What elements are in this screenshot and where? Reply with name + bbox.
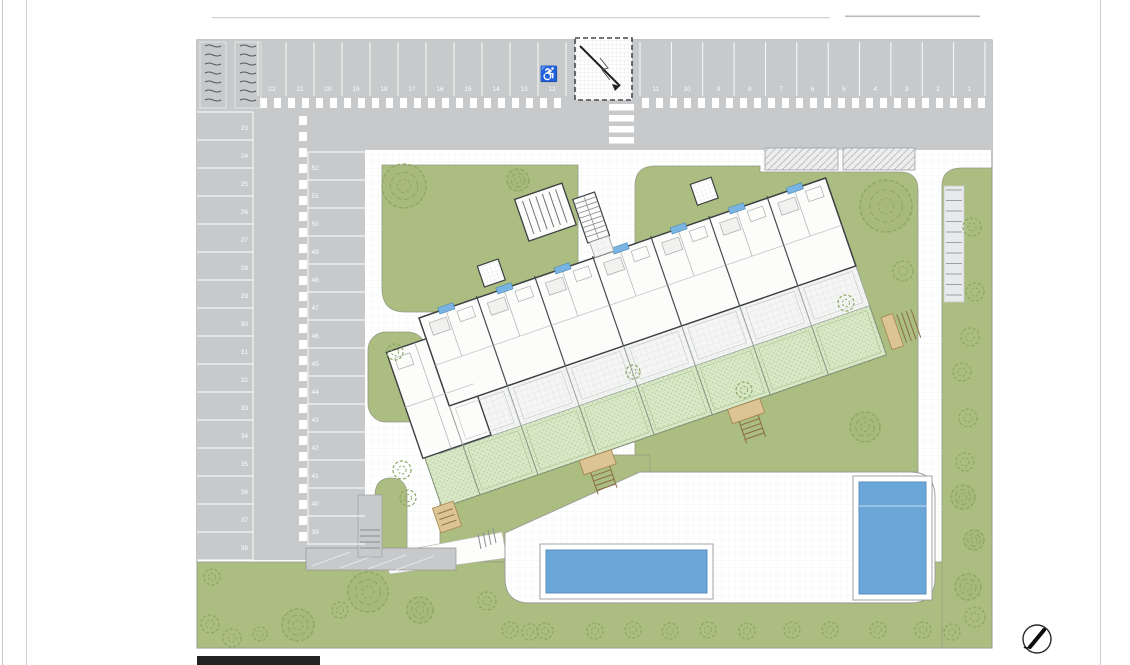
parking-space-number: 24 bbox=[241, 153, 249, 160]
bench-planter-row bbox=[944, 186, 964, 302]
parking-space-number: 42 bbox=[312, 445, 320, 452]
lane-dash bbox=[299, 228, 307, 237]
lane-dash bbox=[299, 292, 307, 301]
parking-space-number: 1 bbox=[967, 86, 971, 93]
parking-space-number: 44 bbox=[312, 389, 320, 396]
tree-canopy-icon bbox=[955, 574, 981, 600]
tree-canopy-icon bbox=[348, 572, 388, 612]
lane-dash bbox=[299, 324, 307, 333]
lane-dash bbox=[299, 388, 307, 397]
parking-space-number: 10 bbox=[683, 86, 691, 93]
parking-space-number: 33 bbox=[241, 405, 249, 412]
north-arrow-compass-icon bbox=[1023, 625, 1051, 653]
parking-space-number: 19 bbox=[352, 86, 360, 93]
parking-stairwell bbox=[575, 38, 632, 100]
tree-canopy-icon bbox=[860, 180, 912, 232]
parking-space-number: 7 bbox=[779, 86, 783, 93]
tree-canopy-icon bbox=[507, 169, 529, 191]
parking-space-number: 28 bbox=[241, 265, 249, 272]
crosswalk-bar bbox=[609, 137, 634, 144]
ramp-north-2 bbox=[843, 148, 915, 170]
parking-space-number: 51 bbox=[312, 193, 320, 200]
parking-space-number: 38 bbox=[241, 545, 249, 552]
parking-space-number: 31 bbox=[241, 349, 249, 356]
lane-dash bbox=[299, 532, 307, 541]
crosswalk-bar bbox=[609, 104, 634, 111]
parking-space-number: 47 bbox=[312, 305, 320, 312]
lane-dash bbox=[299, 404, 307, 413]
parking-space-number: 18 bbox=[380, 86, 388, 93]
main-pool bbox=[540, 544, 713, 599]
parking-space-number: 16 bbox=[436, 86, 444, 93]
lane-dash bbox=[299, 148, 307, 157]
parking-space-number: 15 bbox=[464, 86, 472, 93]
tree-canopy-icon bbox=[850, 412, 880, 442]
parking-space-number: 22 bbox=[268, 86, 276, 93]
parking-space-number: 30 bbox=[241, 321, 249, 328]
lane-dash bbox=[299, 452, 307, 461]
parking-space-number: 2 bbox=[936, 86, 940, 93]
parking-space-number: 49 bbox=[312, 249, 320, 256]
parking-space-number: 35 bbox=[241, 461, 249, 468]
parking-space-number: 23 bbox=[241, 125, 249, 132]
parking-space-number: 9 bbox=[717, 86, 721, 93]
site-plan-canvas: 2221201918171615141312111098765432123242… bbox=[0, 0, 1130, 665]
lane-dash bbox=[299, 164, 307, 173]
parking-space-number: 11 bbox=[652, 86, 659, 93]
parking-space-number: 34 bbox=[241, 433, 249, 440]
parking-space-number: 32 bbox=[241, 377, 249, 384]
parking-space-number: 17 bbox=[408, 86, 416, 93]
parking-space-number: 50 bbox=[312, 221, 320, 228]
lane-dash bbox=[299, 244, 307, 253]
parking-space-number: 43 bbox=[312, 417, 320, 424]
parking-space-number: 25 bbox=[241, 181, 249, 188]
pedestrian-ramp-path bbox=[358, 495, 382, 557]
parking-space-number: 39 bbox=[312, 529, 320, 536]
parking-space-number: 13 bbox=[520, 86, 528, 93]
parking-space-number: 6 bbox=[811, 86, 815, 93]
lane-dash bbox=[299, 196, 307, 205]
tree-canopy-icon bbox=[951, 485, 975, 509]
parking-space-number: 3 bbox=[905, 86, 909, 93]
parking-space-number: 8 bbox=[748, 86, 752, 93]
parking-space-number: 12 bbox=[548, 86, 556, 93]
parking-space-number: 36 bbox=[241, 489, 249, 496]
parking-space-number: 4 bbox=[873, 86, 877, 93]
tree-canopy-icon bbox=[964, 530, 984, 550]
lane-dash bbox=[299, 356, 307, 365]
lane-dash bbox=[299, 484, 307, 493]
parking-space-number: 41 bbox=[312, 473, 320, 480]
parking-space-number: 27 bbox=[241, 237, 249, 244]
parking-space-number: 48 bbox=[312, 277, 320, 284]
crosswalk-bar bbox=[609, 126, 634, 133]
lane-dash bbox=[299, 308, 307, 317]
lane-dash bbox=[299, 500, 307, 509]
parking-space-number: 5 bbox=[842, 86, 846, 93]
lane-dash bbox=[299, 212, 307, 221]
lane-dash bbox=[299, 372, 307, 381]
lane-dash bbox=[299, 340, 307, 349]
parking-space-number: 26 bbox=[241, 209, 249, 216]
tree-canopy-icon bbox=[382, 164, 426, 208]
lane-dash bbox=[299, 132, 307, 141]
lane-dash bbox=[299, 276, 307, 285]
parking-space-number: 21 bbox=[296, 86, 304, 93]
parking-space-number: 37 bbox=[241, 517, 249, 524]
parking-space-number: 20 bbox=[324, 86, 332, 93]
tree-canopy-icon bbox=[282, 609, 314, 641]
site-plan-drawing: 2221201918171615141312111098765432123242… bbox=[0, 0, 1130, 665]
parking-space-number: 45 bbox=[312, 361, 320, 368]
parking-space-number: 29 bbox=[241, 293, 249, 300]
parking-space-number: 46 bbox=[312, 333, 320, 340]
lane-dash bbox=[299, 420, 307, 429]
tree-canopy-icon bbox=[407, 597, 433, 623]
lane-dash bbox=[299, 516, 307, 525]
crosswalk-bar bbox=[609, 115, 634, 122]
lane-dash bbox=[299, 180, 307, 189]
lane-dash bbox=[299, 468, 307, 477]
title-block-bar bbox=[197, 656, 320, 665]
parking-space-number: 40 bbox=[312, 501, 320, 508]
parking-space-number: 14 bbox=[492, 86, 500, 93]
wheelchair-icon: ♿ bbox=[540, 65, 559, 83]
lane-dash bbox=[299, 260, 307, 269]
ramp-north-1 bbox=[765, 148, 838, 170]
lane-dash bbox=[299, 436, 307, 445]
lane-dash bbox=[299, 116, 307, 125]
secondary-pool bbox=[853, 476, 932, 600]
parking-space-number: 52 bbox=[312, 165, 320, 172]
